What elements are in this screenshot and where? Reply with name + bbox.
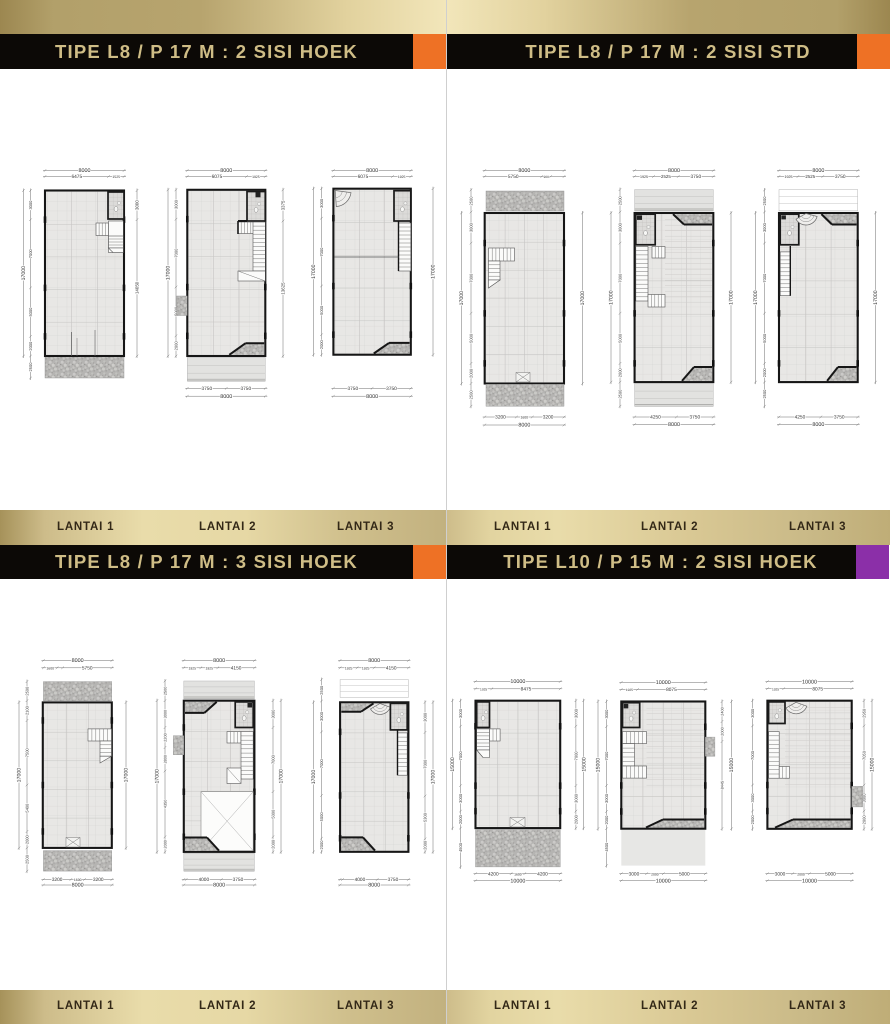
svg-text:2000: 2000 (271, 839, 276, 849)
svg-text:3000: 3000 (604, 793, 609, 803)
svg-text:2500: 2500 (25, 854, 30, 864)
svg-text:2000: 2000 (319, 339, 324, 349)
svg-text:2100: 2100 (25, 705, 30, 715)
svg-text:17000: 17000 (17, 768, 23, 783)
svg-text:2500: 2500 (319, 685, 324, 695)
svg-text:5000: 5000 (825, 871, 836, 877)
svg-text:2500: 2500 (28, 362, 33, 372)
svg-text:17000: 17000 (431, 770, 437, 785)
svg-text:3000: 3000 (458, 793, 463, 803)
svg-text:10000: 10000 (802, 878, 817, 884)
svg-text:10000: 10000 (510, 878, 525, 884)
svg-text:3000: 3000 (458, 708, 463, 718)
svg-text:2000: 2000 (604, 815, 609, 825)
svg-text:8000: 8000 (72, 658, 84, 664)
svg-text:1925: 1925 (640, 175, 648, 179)
svg-text:3750: 3750 (233, 877, 244, 883)
svg-text:2500: 2500 (469, 196, 474, 206)
svg-text:2400: 2400 (721, 707, 725, 715)
svg-text:2500: 2500 (164, 687, 168, 695)
svg-text:1600: 1600 (521, 416, 529, 420)
svg-text:17000: 17000 (609, 290, 615, 305)
svg-text:2500: 2500 (618, 196, 623, 206)
svg-text:2000: 2000 (721, 727, 725, 735)
svg-text:14050: 14050 (135, 281, 140, 294)
svg-text:8000: 8000 (213, 883, 225, 889)
svg-text:2000: 2000 (469, 368, 474, 378)
svg-text:4150: 4150 (386, 666, 397, 672)
svg-text:15000: 15000 (450, 757, 456, 772)
svg-text:2950: 2950 (862, 708, 867, 718)
svg-text:17000: 17000 (873, 290, 879, 305)
svg-text:8000: 8000 (368, 658, 380, 664)
svg-text:3000: 3000 (750, 708, 755, 718)
svg-text:7000: 7000 (604, 751, 609, 761)
svg-text:17000: 17000 (124, 768, 130, 783)
svg-text:1925: 1925 (345, 667, 353, 671)
svg-text:3750: 3750 (690, 174, 701, 180)
svg-text:3750: 3750 (201, 386, 212, 392)
svg-text:4000: 4000 (355, 877, 366, 883)
svg-text:2000: 2000 (618, 368, 623, 378)
svg-text:2000: 2000 (423, 840, 428, 850)
svg-text:1925: 1925 (772, 687, 779, 691)
svg-text:8000: 8000 (518, 168, 530, 174)
svg-text:3000: 3000 (574, 793, 579, 803)
svg-text:7000: 7000 (762, 273, 767, 283)
svg-text:5000: 5000 (28, 307, 33, 317)
svg-text:2000: 2000 (651, 872, 659, 876)
svg-text:3000: 3000 (174, 199, 179, 209)
svg-text:6475: 6475 (71, 174, 82, 180)
svg-text:5300: 5300 (423, 812, 428, 822)
svg-text:7000: 7000 (458, 751, 463, 761)
svg-text:17000: 17000 (431, 264, 437, 279)
svg-text:1600: 1600 (74, 878, 82, 882)
svg-text:17000: 17000 (311, 264, 317, 279)
svg-text:7000: 7000 (618, 273, 623, 283)
svg-text:7500: 7500 (25, 748, 30, 758)
svg-text:15000: 15000 (729, 758, 735, 773)
svg-text:1600: 1600 (46, 667, 54, 671)
svg-text:1925: 1925 (252, 175, 260, 179)
svg-text:2000: 2000 (319, 840, 324, 850)
svg-text:8000: 8000 (72, 883, 84, 889)
svg-text:2800: 2800 (164, 755, 168, 763)
svg-text:3000: 3000 (629, 871, 640, 877)
svg-text:2000: 2000 (797, 872, 805, 876)
svg-text:1925: 1925 (626, 688, 633, 692)
svg-text:7000: 7000 (28, 249, 33, 259)
svg-text:3750: 3750 (347, 386, 358, 392)
svg-text:17000: 17000 (729, 290, 735, 305)
svg-text:3750: 3750 (386, 386, 397, 392)
svg-text:2500: 2500 (469, 390, 474, 400)
svg-text:3000: 3000 (423, 712, 428, 722)
svg-text:17000: 17000 (155, 769, 161, 784)
svg-text:3000: 3000 (164, 710, 168, 718)
svg-text:4350: 4350 (164, 800, 168, 808)
svg-text:3000: 3000 (775, 871, 786, 877)
svg-text:3375: 3375 (281, 200, 286, 210)
svg-text:2200: 2200 (164, 733, 168, 741)
svg-text:8000: 8000 (812, 422, 824, 428)
svg-text:15000: 15000 (596, 758, 602, 773)
svg-text:3750: 3750 (388, 877, 399, 883)
svg-text:7050: 7050 (862, 750, 867, 760)
svg-text:2000: 2000 (750, 815, 755, 825)
svg-text:17000: 17000 (166, 266, 172, 281)
svg-text:3200: 3200 (543, 415, 554, 421)
svg-text:5000: 5000 (319, 812, 324, 822)
svg-text:2500: 2500 (25, 686, 30, 696)
svg-text:3000: 3000 (750, 793, 755, 803)
svg-text:15000: 15000 (581, 757, 587, 772)
svg-text:4500: 4500 (604, 842, 609, 852)
svg-text:2000: 2000 (164, 840, 168, 848)
svg-text:3750: 3750 (835, 174, 846, 180)
svg-text:3000: 3000 (604, 709, 609, 719)
svg-text:1925: 1925 (398, 175, 406, 179)
svg-text:8000: 8000 (79, 168, 91, 174)
svg-text:2000: 2000 (862, 815, 867, 825)
svg-text:6075: 6075 (358, 174, 369, 180)
svg-text:10000: 10000 (510, 679, 525, 685)
svg-text:4200: 4200 (537, 871, 548, 877)
svg-text:5000: 5000 (762, 333, 767, 343)
svg-text:3000: 3000 (469, 222, 474, 232)
svg-text:3000: 3000 (762, 222, 767, 232)
svg-text:3750: 3750 (240, 386, 251, 392)
svg-text:10000: 10000 (802, 679, 817, 685)
svg-text:15000: 15000 (870, 757, 876, 772)
svg-text:17000: 17000 (753, 290, 759, 305)
svg-text:8000: 8000 (366, 168, 378, 174)
svg-text:5000: 5000 (618, 333, 623, 343)
svg-text:4000: 4000 (198, 877, 209, 883)
svg-text:2500: 2500 (762, 196, 767, 206)
svg-text:4250: 4250 (650, 415, 661, 421)
svg-text:17000: 17000 (459, 291, 465, 306)
svg-text:3000: 3000 (618, 222, 623, 232)
svg-text:2000: 2000 (28, 341, 33, 351)
svg-text:8475: 8475 (521, 687, 532, 693)
svg-text:10000: 10000 (656, 878, 671, 884)
svg-text:8075: 8075 (812, 686, 823, 692)
svg-text:2000: 2000 (458, 814, 463, 824)
svg-text:1925: 1925 (206, 667, 214, 671)
svg-text:1925: 1925 (785, 175, 793, 179)
svg-text:4150: 4150 (231, 666, 242, 672)
svg-text:8075: 8075 (666, 687, 677, 693)
svg-text:17000: 17000 (580, 291, 586, 306)
svg-text:3750: 3750 (689, 415, 700, 421)
svg-text:4250: 4250 (795, 415, 806, 421)
svg-text:7000: 7000 (319, 758, 324, 768)
svg-text:4500: 4500 (458, 842, 463, 852)
svg-text:3000: 3000 (271, 709, 276, 719)
svg-text:2000: 2000 (174, 341, 179, 351)
svg-text:3000: 3000 (28, 200, 33, 210)
svg-text:5400: 5400 (25, 803, 30, 813)
svg-text:8445: 8445 (721, 781, 725, 789)
svg-text:2500: 2500 (618, 389, 623, 399)
svg-text:5000: 5000 (469, 333, 474, 343)
svg-text:7000: 7000 (271, 754, 276, 764)
svg-text:7000: 7000 (750, 750, 755, 760)
svg-text:5000: 5000 (271, 809, 276, 819)
svg-text:1925: 1925 (480, 688, 487, 692)
svg-text:1925: 1925 (189, 667, 197, 671)
svg-text:2000: 2000 (25, 834, 30, 844)
svg-text:8000: 8000 (518, 423, 530, 429)
svg-text:2525: 2525 (661, 174, 671, 179)
svg-text:7000: 7000 (574, 751, 579, 761)
svg-text:8000: 8000 (220, 168, 232, 174)
svg-text:3750: 3750 (834, 415, 845, 421)
svg-text:3000: 3000 (319, 711, 324, 721)
svg-text:1525: 1525 (112, 175, 120, 179)
svg-text:5750: 5750 (82, 666, 93, 672)
svg-text:8000: 8000 (366, 394, 378, 400)
svg-text:7000: 7000 (423, 759, 428, 769)
svg-text:13625: 13625 (281, 282, 286, 295)
svg-text:5750: 5750 (508, 174, 519, 180)
svg-text:3200: 3200 (495, 415, 506, 421)
svg-text:7000: 7000 (319, 247, 324, 257)
svg-text:8000: 8000 (213, 658, 225, 664)
svg-text:5000: 5000 (319, 305, 324, 315)
svg-text:4200: 4200 (488, 871, 499, 877)
svg-text:5000: 5000 (679, 871, 690, 877)
svg-text:8000: 8000 (668, 422, 680, 428)
svg-text:10000: 10000 (656, 680, 671, 686)
svg-text:17000: 17000 (21, 266, 27, 281)
svg-text:7000: 7000 (174, 248, 179, 258)
svg-text:3000: 3000 (319, 198, 324, 208)
svg-text:3200: 3200 (52, 877, 63, 883)
svg-text:2000: 2000 (762, 368, 767, 378)
svg-text:6075: 6075 (212, 174, 223, 180)
svg-text:2525: 2525 (805, 174, 815, 179)
svg-text:7000: 7000 (469, 273, 474, 283)
svg-text:8000: 8000 (220, 394, 232, 400)
svg-text:8000: 8000 (368, 883, 380, 889)
svg-text:1925: 1925 (362, 667, 370, 671)
svg-text:17000: 17000 (279, 769, 285, 784)
svg-text:2000: 2000 (574, 814, 579, 824)
svg-text:17000: 17000 (311, 770, 317, 785)
svg-text:3000: 3000 (135, 200, 140, 210)
svg-text:1600: 1600 (514, 872, 522, 876)
svg-text:900: 900 (544, 175, 550, 179)
svg-text:3000: 3000 (574, 708, 579, 718)
svg-text:2500: 2500 (762, 389, 767, 399)
svg-text:3200: 3200 (93, 877, 104, 883)
